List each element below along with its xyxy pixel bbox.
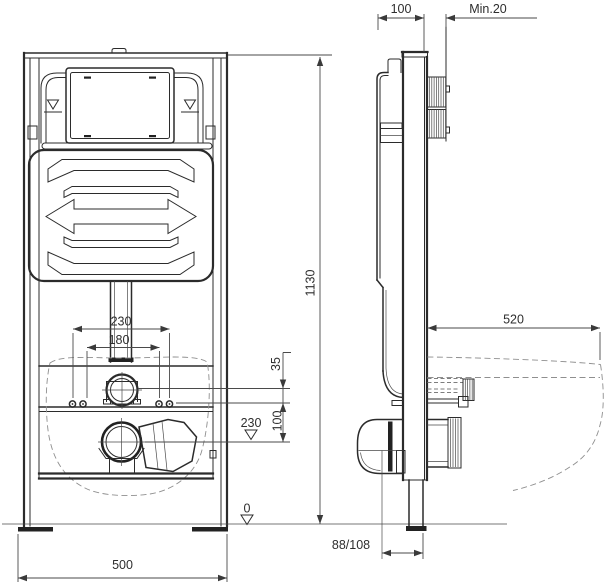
fill-valve-cap xyxy=(388,59,401,73)
outlet-pipe-side xyxy=(428,420,449,468)
cistern-side xyxy=(377,59,403,406)
wing-clip xyxy=(28,126,37,139)
installation-frame-drawing: 230 180 35 100 230 0 500 1130 100 xyxy=(0,0,608,583)
cistern-arrow-pattern xyxy=(46,160,196,275)
dim-bolt-spacing-inner-label: 180 xyxy=(109,333,130,347)
dim-frame-width-label: 500 xyxy=(112,558,133,572)
datum-triangle-icon xyxy=(241,515,253,525)
corner-mark xyxy=(149,77,156,79)
outlet-sleeve xyxy=(448,418,461,469)
technical-drawing-sheet: 230 180 35 100 230 0 500 1130 100 xyxy=(0,0,608,583)
frame-base xyxy=(18,474,228,532)
side-view xyxy=(358,27,604,559)
datum-outlet-level-label: 230 xyxy=(241,416,262,430)
cistern-lid xyxy=(42,143,212,149)
wing-clip xyxy=(206,126,215,139)
dimensions-front: 230 180 35 100 230 0 500 1130 xyxy=(18,55,332,582)
dim-frame-depth-label: 100 xyxy=(391,2,412,16)
dim-supply-offset-label: 35 xyxy=(269,357,283,371)
toilet-bowl-outline-front xyxy=(46,357,209,496)
front-view xyxy=(18,49,228,532)
datum-floor-label: 0 xyxy=(244,502,251,516)
corner-mark xyxy=(149,135,156,137)
foot-plate xyxy=(192,527,228,532)
corner-mark xyxy=(84,77,91,79)
foot-plate-side xyxy=(406,526,427,531)
dim-bowl-depth-label: 520 xyxy=(503,313,524,327)
access-panel xyxy=(66,68,174,143)
dim-min-wall-clearance-label: Min.20 xyxy=(469,2,507,16)
foot-side xyxy=(409,480,423,526)
dim-outlet-to-wall-label: 88/108 xyxy=(332,538,370,552)
waste-elbow-front xyxy=(139,420,197,472)
dim-bolt-to-outlet-label: 100 xyxy=(271,411,285,432)
waste-outlet-front xyxy=(98,418,197,473)
dim-frame-height-label: 1130 xyxy=(304,270,318,297)
housing-clip xyxy=(446,86,450,92)
toilet-bowl-outline-side xyxy=(428,357,604,491)
supply-stub-side xyxy=(428,379,475,408)
side-wings xyxy=(28,73,215,143)
water-level-icon xyxy=(48,100,59,109)
water-level-icon xyxy=(185,100,196,109)
datum-triangle-icon xyxy=(245,430,257,440)
dimensions-side: 100 Min.20 520 88/108 xyxy=(332,2,600,559)
cistern-front xyxy=(29,143,213,281)
foot-plate xyxy=(18,527,53,532)
trap-gasket xyxy=(388,422,393,472)
corner-mark xyxy=(84,135,91,137)
flush-plate-housing xyxy=(428,27,450,141)
frame-rail-side xyxy=(402,52,428,531)
housing-clip xyxy=(446,127,450,133)
water-supply-connection xyxy=(102,372,142,409)
dim-bolt-spacing-outer-label: 230 xyxy=(111,315,132,329)
